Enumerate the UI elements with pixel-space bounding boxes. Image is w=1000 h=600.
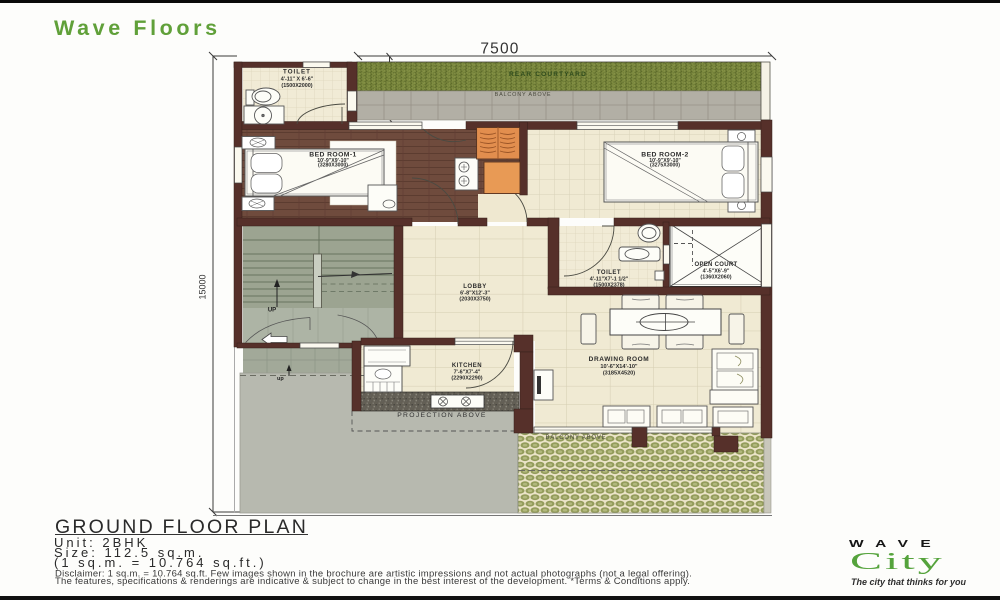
svg-text:KITCHEN: KITCHEN (452, 363, 482, 369)
svg-text:LOBBY: LOBBY (463, 284, 487, 290)
svg-text:BALCONY ABOVE: BALCONY ABOVE (495, 92, 552, 98)
svg-text:REAR COURTYARD: REAR COURTYARD (509, 71, 587, 78)
svg-text:(2030X3750): (2030X3750) (459, 297, 490, 303)
svg-text:(2290X2290): (2290X2290) (451, 376, 482, 382)
svg-text:(3280X3000): (3280X3000) (318, 163, 348, 169)
svg-text:DRAWING ROOM: DRAWING ROOM (589, 356, 650, 363)
svg-text:(1500X2378): (1500X2378) (593, 283, 624, 289)
svg-text:4'-11" X 6'-6": 4'-11" X 6'-6" (281, 77, 314, 83)
svg-text:(3275X3000): (3275X3000) (650, 163, 680, 169)
svg-text:up: up (277, 376, 284, 382)
svg-text:(1360X2060): (1360X2060) (700, 275, 731, 281)
svg-text:(1500X2000): (1500X2000) (281, 83, 312, 89)
svg-text:OPEN COURT: OPEN COURT (694, 262, 737, 268)
svg-text:15000: 15000 (198, 274, 208, 299)
svg-text:BALCONY ABOVE: BALCONY ABOVE (546, 435, 607, 441)
svg-text:UP: UP (268, 308, 276, 314)
svg-text:10'-6"X14'-10": 10'-6"X14'-10" (600, 364, 638, 370)
svg-text:7500: 7500 (480, 41, 519, 58)
svg-text:TOILET: TOILET (597, 270, 621, 276)
svg-text:PROJECTION ABOVE: PROJECTION ABOVE (397, 412, 487, 419)
svg-text:TOILET: TOILET (283, 69, 311, 76)
svg-text:(3185X4520): (3185X4520) (603, 371, 635, 377)
